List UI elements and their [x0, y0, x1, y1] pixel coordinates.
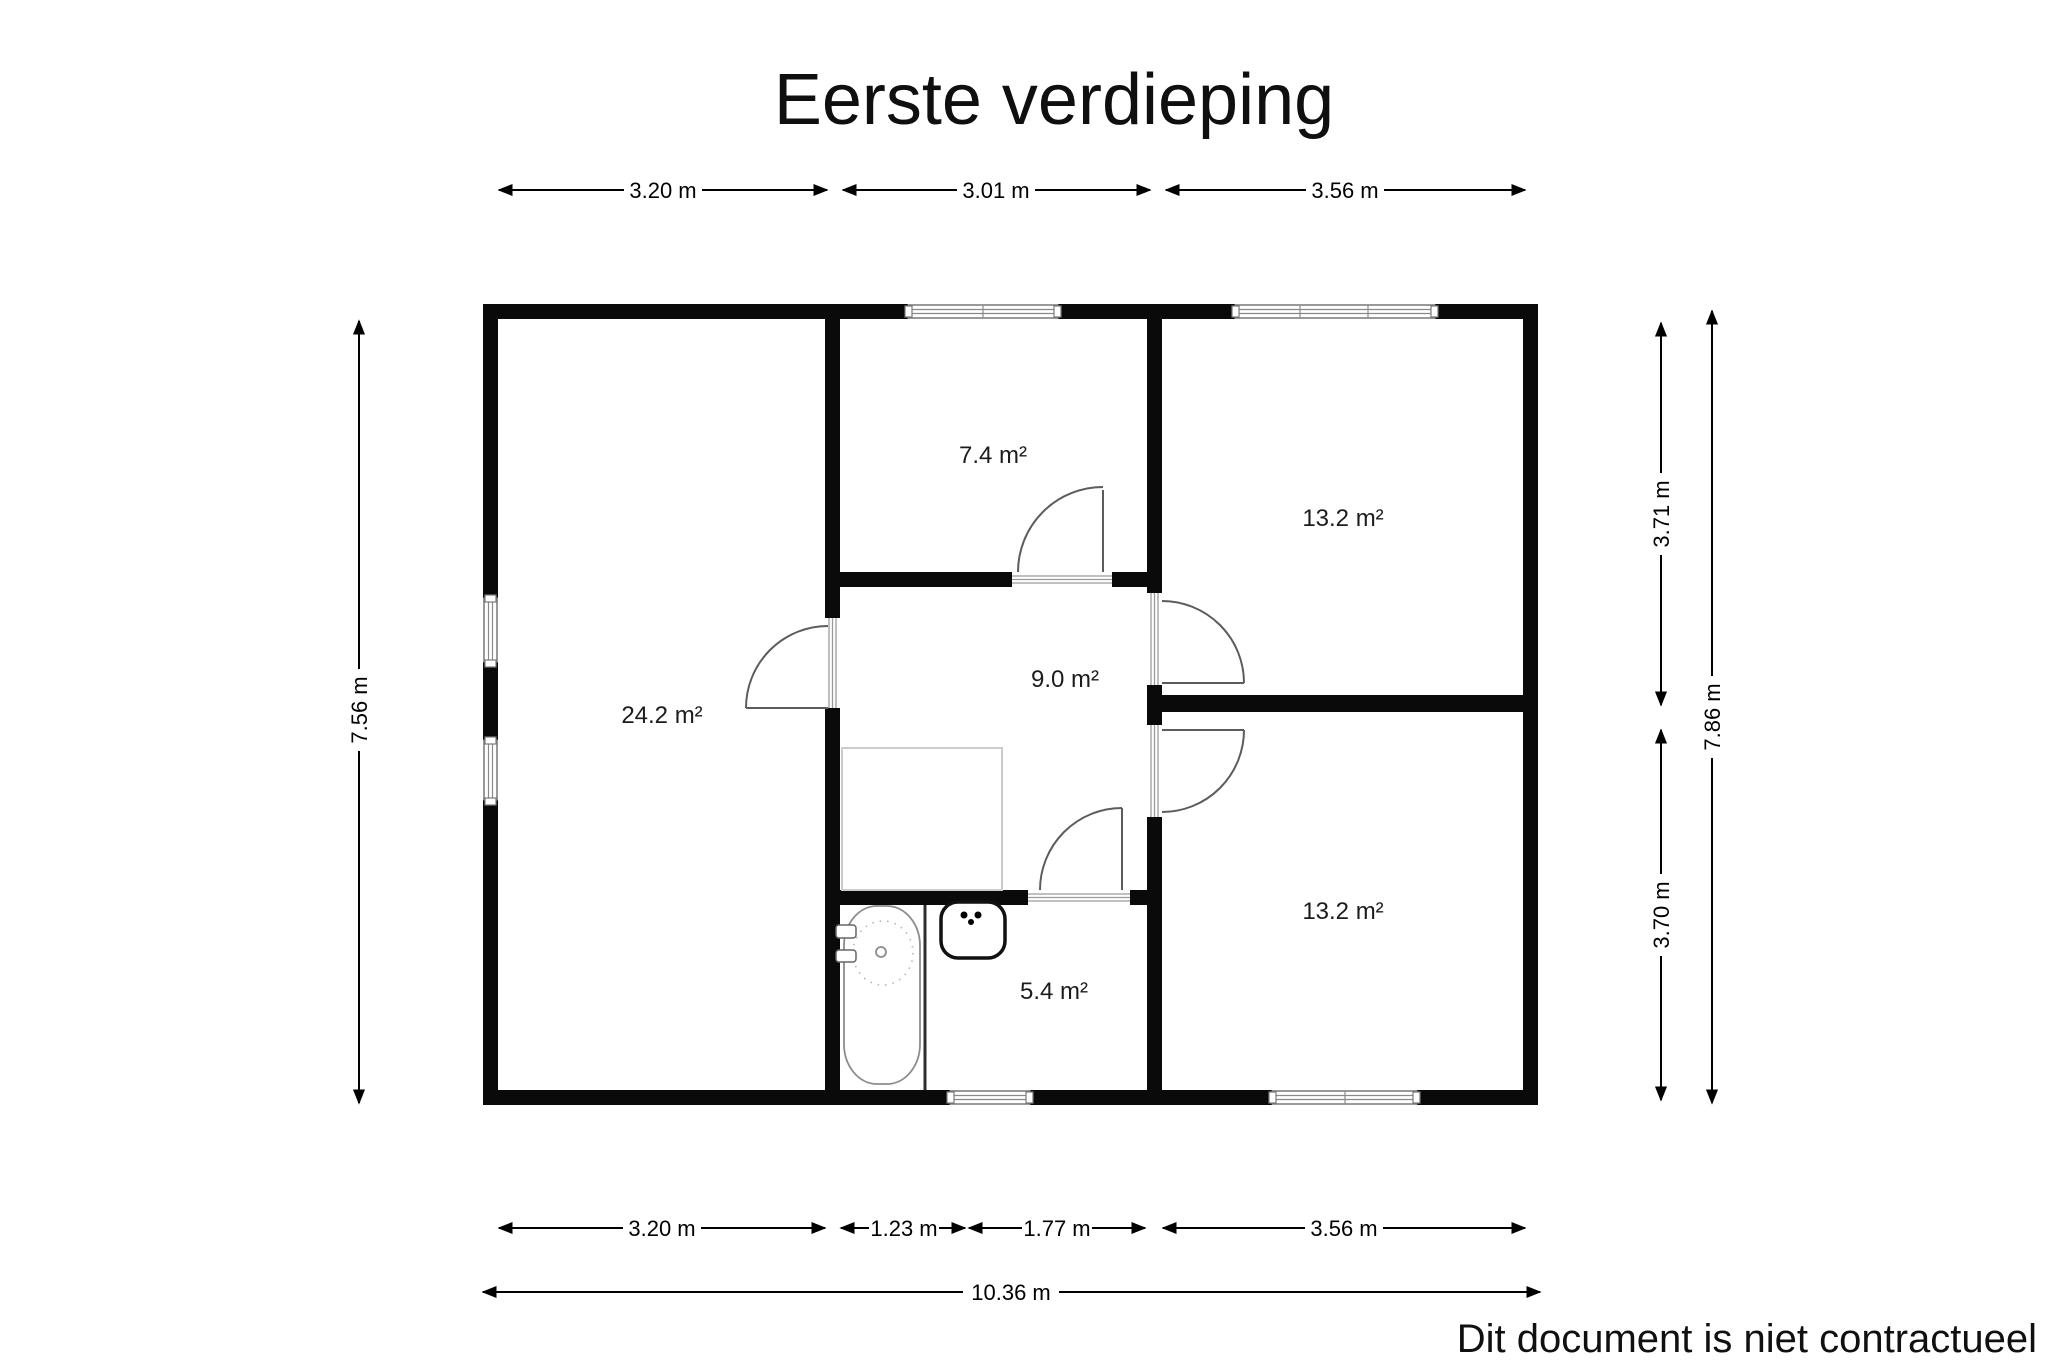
wall-bottom-1: [483, 1090, 950, 1105]
interior-walls: [825, 319, 1523, 1090]
room-label-hall: 9.0 m²: [1031, 666, 1099, 693]
dim-label-right-top: 3.71 m: [1649, 480, 1674, 547]
wall-left-2: [483, 662, 498, 740]
room-label-bathroom: 5.4 m²: [1020, 978, 1088, 1005]
stair-void-outline: [842, 748, 1002, 890]
wall-hall-bathroom-1: [840, 890, 1028, 905]
door-sills: [825, 572, 1162, 905]
dim-label-bottom-3: 1.77 m: [1023, 1216, 1090, 1241]
wall-left-3: [483, 800, 498, 1105]
dim-label-bottom-4: 3.56 m: [1310, 1216, 1377, 1241]
disclaimer-text: Dit document is niet contractueel: [1457, 1317, 2037, 1361]
doors: [746, 487, 1244, 890]
door-bedroom-bottom: [1162, 730, 1244, 812]
wall-topsmall-hall-1: [840, 572, 1012, 587]
dim-label-total-width: 10.36 m: [971, 1280, 1051, 1305]
window-left-upper: [484, 595, 497, 667]
wall-living-hall-upper: [825, 319, 840, 618]
wall-hall-bedrooms-upper: [1147, 319, 1162, 593]
wall-right: [1523, 304, 1538, 1105]
sill-living-door: [825, 618, 840, 708]
sill-bedroom-bottom-door: [1147, 725, 1162, 817]
dimensions-bottom: 3.20 m 1.23 m 1.77 m 3.56 m 10.36 m: [483, 1215, 1540, 1305]
sink-icon: [941, 902, 1005, 958]
window-top-left: [905, 305, 1061, 318]
door-top-small-room: [1018, 487, 1103, 572]
wall-between-bedrooms: [1162, 695, 1523, 712]
window-top-right: [1232, 305, 1438, 318]
wall-living-hall-lower: [825, 708, 840, 1090]
dimensions-top: 3.20 m 3.01 m 3.56 m: [499, 177, 1525, 203]
dim-label-top-3: 3.56 m: [1311, 178, 1378, 203]
dim-label-right-bottom: 3.70 m: [1649, 881, 1674, 948]
wall-left-1: [483, 304, 498, 598]
wall-hall-bedrooms-middle: [1147, 685, 1162, 725]
window-bottom-bathroom: [947, 1091, 1033, 1104]
door-bathroom: [1040, 808, 1122, 890]
dim-label-top-2: 3.01 m: [962, 178, 1029, 203]
wall-top-2: [1058, 304, 1235, 319]
door-bedroom-top: [1162, 601, 1244, 683]
wall-hall-bedrooms-lower: [1147, 817, 1162, 1090]
wall-topsmall-hall-2: [1112, 572, 1162, 587]
dim-label-right-total: 7.86 m: [1700, 683, 1725, 750]
wall-bottom-2: [1030, 1090, 1272, 1105]
window-bottom-bedroom: [1269, 1091, 1420, 1104]
dimensions-right: 3.71 m 3.70 m 7.86 m: [1648, 311, 1725, 1103]
sill-topsmall-door: [1012, 572, 1112, 587]
wall-top-1: [483, 304, 908, 319]
page-title: Eerste verdieping: [774, 60, 1334, 140]
door-living: [746, 626, 828, 708]
sill-bedroom-top-door: [1147, 593, 1162, 685]
window-left-lower: [484, 737, 497, 805]
bathtub-icon: [836, 906, 920, 1084]
dim-label-bottom-1: 3.20 m: [628, 1216, 695, 1241]
room-label-bedroom-bottom: 13.2 m²: [1302, 898, 1383, 925]
floor-plan-drawing: Eerste verdieping: [0, 0, 2048, 1367]
wall-hall-bathroom-2: [1130, 890, 1162, 905]
wall-top-3: [1435, 304, 1538, 319]
dim-label-left-height: 7.56 m: [347, 676, 372, 743]
dim-label-top-1: 3.20 m: [629, 178, 696, 203]
floor-plan-page: Eerste verdieping: [0, 0, 2048, 1367]
dim-label-bottom-2: 1.23 m: [870, 1216, 937, 1241]
room-label-living: 24.2 m²: [621, 702, 702, 729]
room-label-bedroom-top: 13.2 m²: [1302, 505, 1383, 532]
wall-bottom-3: [1417, 1090, 1538, 1105]
sill-bathroom-door: [1028, 890, 1130, 905]
dimension-left: 7.56 m: [346, 321, 372, 1103]
room-label-top-small: 7.4 m²: [959, 442, 1027, 469]
